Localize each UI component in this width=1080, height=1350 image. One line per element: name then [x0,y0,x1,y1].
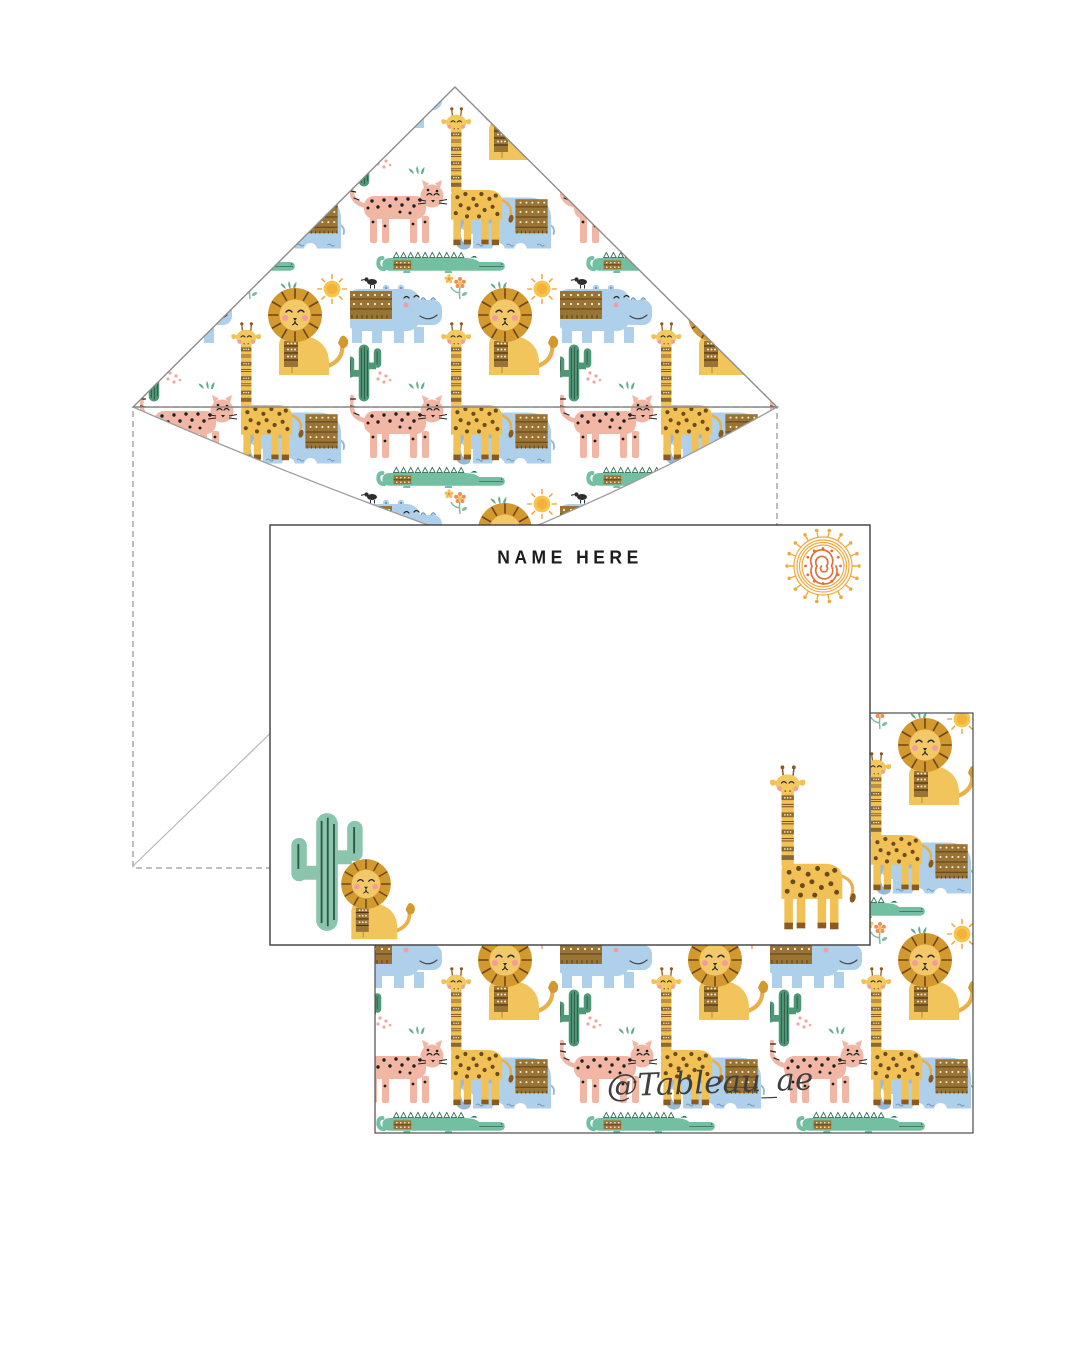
stationery-mockup: NAME HERE @Tableau_ae [0,0,1080,1350]
notecard [270,525,870,945]
mockup-scene [0,0,1080,1350]
notecard-name-text: NAME HERE [270,548,870,567]
envelope-flap-liner [133,87,777,407]
